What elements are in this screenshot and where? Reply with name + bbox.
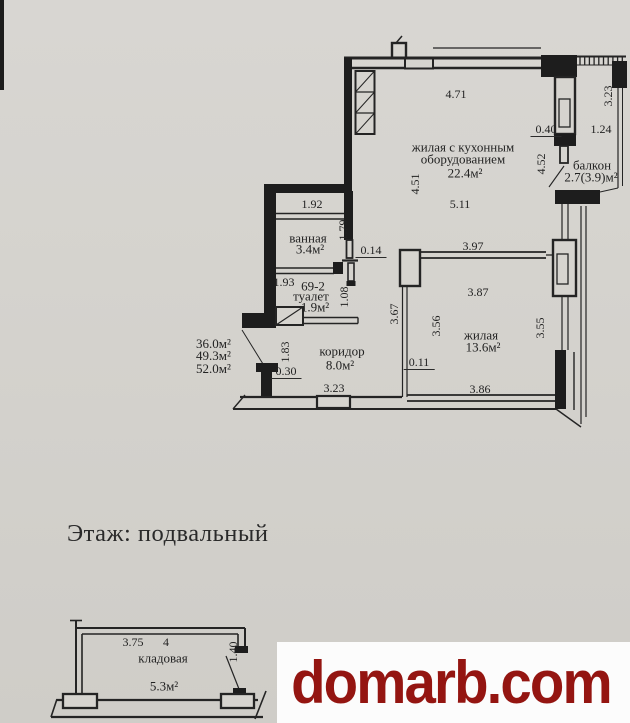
- leader-line: [242, 330, 263, 364]
- dim-label: 1.40: [227, 642, 239, 663]
- dim-label: 3.75: [123, 636, 144, 648]
- dim-label: 1.08: [338, 287, 350, 308]
- dim-label: 3.23: [602, 86, 614, 107]
- dim-label: 1.79: [337, 220, 349, 241]
- dim-label: 0.14: [356, 244, 387, 258]
- watermark-text: domarb.com: [277, 653, 611, 713]
- window-marker: [317, 396, 350, 408]
- vent-stub: [392, 43, 406, 58]
- room-label-storage: кладовая: [138, 652, 187, 665]
- dim-label: 3.97: [463, 240, 484, 252]
- window-marker: [405, 59, 433, 69]
- storage-number: 4: [163, 636, 169, 648]
- dim-label: 1.24: [591, 123, 612, 135]
- door-swing: [549, 166, 564, 187]
- room-area-living-kitchen: 22.4м²: [448, 167, 483, 180]
- floor-plan-drawing: [0, 0, 630, 723]
- ventilation-shaft: [356, 71, 375, 134]
- room-area-storage: 5.3м²: [150, 680, 178, 693]
- dim-label: 1.93: [274, 276, 295, 288]
- window-marker: [63, 694, 97, 708]
- room-area-balcony: 2.7(3.9)м²: [564, 171, 617, 184]
- dim-label: 3.67: [388, 304, 400, 325]
- window-marker: [400, 250, 420, 286]
- window-marker: [221, 694, 254, 708]
- dim-label: 0.40: [531, 123, 562, 137]
- dim-label: 3.55: [534, 318, 546, 339]
- room-area-living: 13.6м²: [466, 341, 501, 354]
- scan-edge-artifact: [0, 0, 4, 90]
- room-area-toilet: 1.9м²: [301, 301, 329, 314]
- scanned-floor-plan-document: 4.71 3.23 0.40 1.24 4.52 4.51 5.11 1.92 …: [0, 0, 630, 723]
- dim-label: 1.83: [279, 342, 291, 363]
- room-area-corridor: 8.0м²: [326, 359, 354, 372]
- dim-label: 4.71: [446, 88, 467, 100]
- dim-label: 3.86: [470, 383, 491, 395]
- room-label-corridor: коридор: [319, 345, 364, 358]
- watermark-box: domarb.com: [277, 642, 630, 723]
- dim-label: 3.56: [430, 316, 442, 337]
- dim-label: 0.11: [404, 356, 435, 370]
- room-label-living-kitchen: жилая с кухонным оборудованием: [409, 142, 517, 165]
- dim-label: 1.92: [302, 198, 323, 210]
- room-area-bathroom: 3.4м²: [296, 243, 324, 256]
- dim-label: 5.11: [450, 198, 471, 210]
- dim-label: 4.51: [409, 174, 421, 195]
- area-summary: 36.0м² 49.3м² 52.0м²: [196, 338, 231, 375]
- storage-floor-plan-walls: [51, 620, 266, 719]
- dim-label: 0.30: [271, 365, 302, 379]
- dim-label: 3.23: [324, 382, 345, 394]
- floor-caption: Этаж: подвальный: [67, 520, 268, 548]
- dim-label: 3.87: [468, 286, 489, 298]
- dim-label: 4.52: [535, 154, 547, 175]
- area-summary-line: 52.0м²: [196, 363, 231, 375]
